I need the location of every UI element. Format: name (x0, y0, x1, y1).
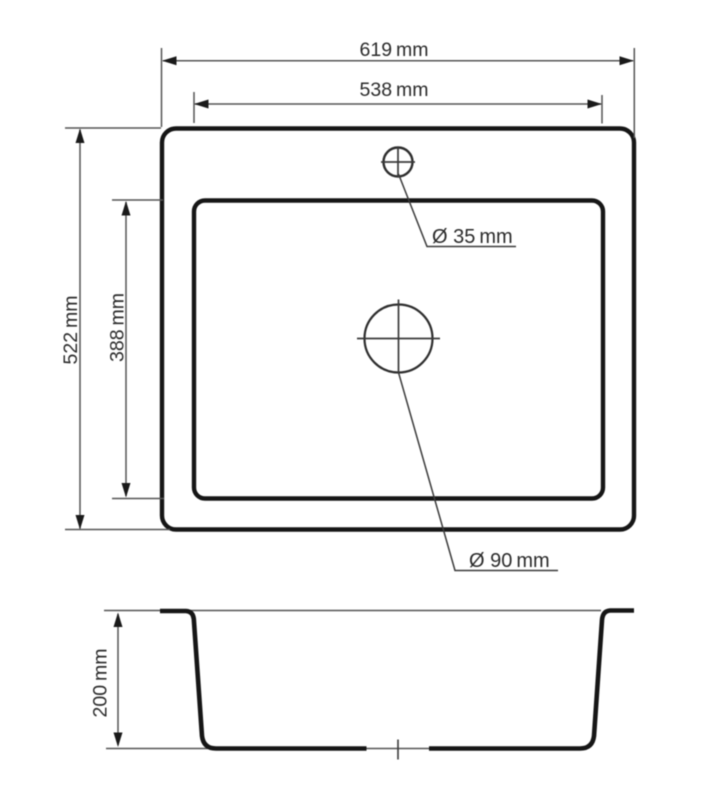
svg-text:200 mm: 200 mm (90, 649, 112, 718)
svg-text:522 mm: 522 mm (60, 296, 82, 365)
svg-text:619 mm: 619 mm (360, 39, 429, 61)
svg-text:Ø 35 mm: Ø 35 mm (432, 226, 513, 248)
svg-text:538 mm: 538 mm (360, 79, 429, 101)
svg-text:388 mm: 388 mm (107, 293, 129, 362)
svg-text:Ø 90 mm: Ø 90 mm (469, 550, 550, 572)
